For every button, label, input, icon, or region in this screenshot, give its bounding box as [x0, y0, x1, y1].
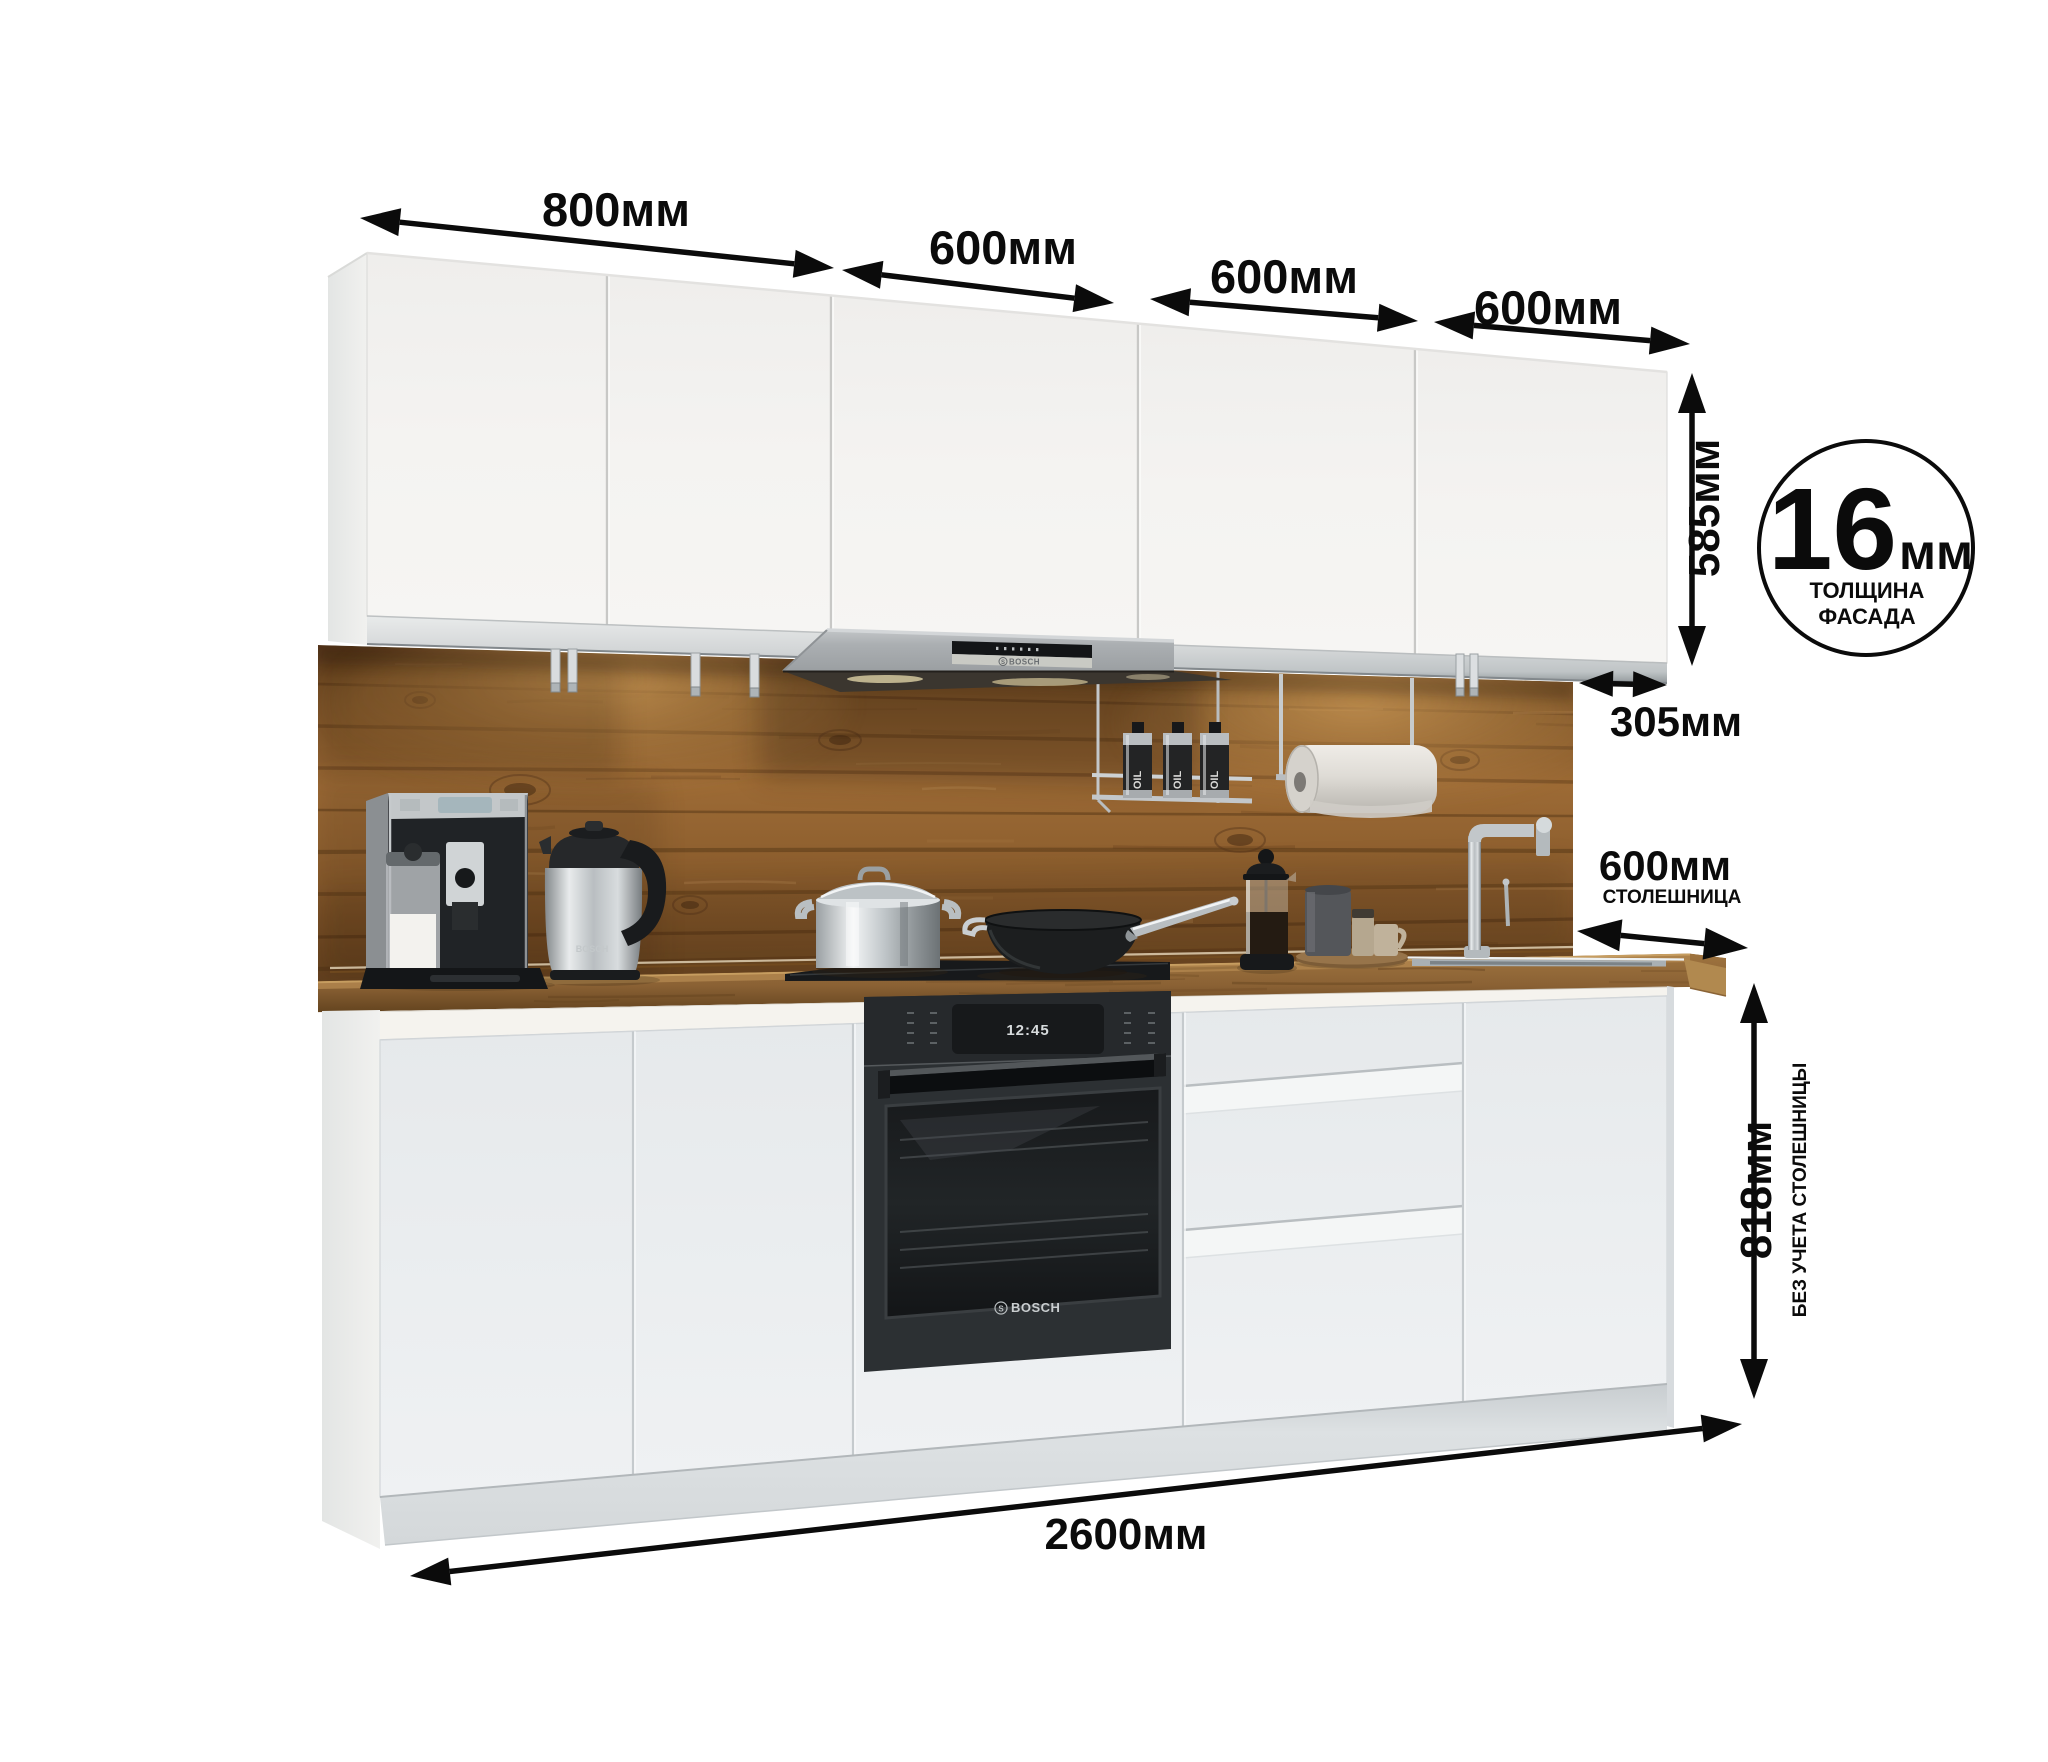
- svg-text:585мм: 585мм: [1680, 439, 1729, 578]
- svg-text:600мм: 600мм: [1210, 250, 1358, 303]
- svg-text:мм: мм: [1899, 524, 1973, 580]
- svg-text:S: S: [998, 1305, 1004, 1314]
- svg-text:БЕЗ УЧЕТА СТОЛЕШНИЦЫ: БЕЗ УЧЕТА СТОЛЕШНИЦЫ: [1790, 1063, 1811, 1317]
- svg-text:S: S: [1001, 660, 1005, 666]
- svg-text:ТОЛЩИНА: ТОЛЩИНА: [1810, 578, 1925, 603]
- svg-text:OIL: OIL: [1132, 771, 1144, 790]
- svg-text:600мм: 600мм: [1599, 842, 1731, 889]
- svg-text:OIL: OIL: [1172, 771, 1184, 790]
- svg-text:OIL: OIL: [1209, 771, 1221, 790]
- svg-text:16: 16: [1768, 464, 1897, 594]
- svg-text:BOSCH: BOSCH: [1011, 1300, 1060, 1315]
- svg-text:2600мм: 2600мм: [1045, 1510, 1208, 1559]
- svg-text:600мм: 600мм: [1474, 281, 1622, 334]
- svg-text:305мм: 305мм: [1610, 698, 1742, 745]
- svg-text:12:45: 12:45: [1006, 1022, 1049, 1039]
- svg-text:818мм: 818мм: [1732, 1121, 1781, 1260]
- svg-text:BOSCH: BOSCH: [1009, 658, 1040, 667]
- svg-text:800мм: 800мм: [542, 183, 690, 236]
- svg-text:BOSCH: BOSCH: [576, 944, 609, 954]
- svg-text:СТОЛЕШНИЦА: СТОЛЕШНИЦА: [1603, 887, 1742, 908]
- svg-text:ФАСАДА: ФАСАДА: [1818, 604, 1915, 629]
- svg-text:600мм: 600мм: [929, 221, 1077, 274]
